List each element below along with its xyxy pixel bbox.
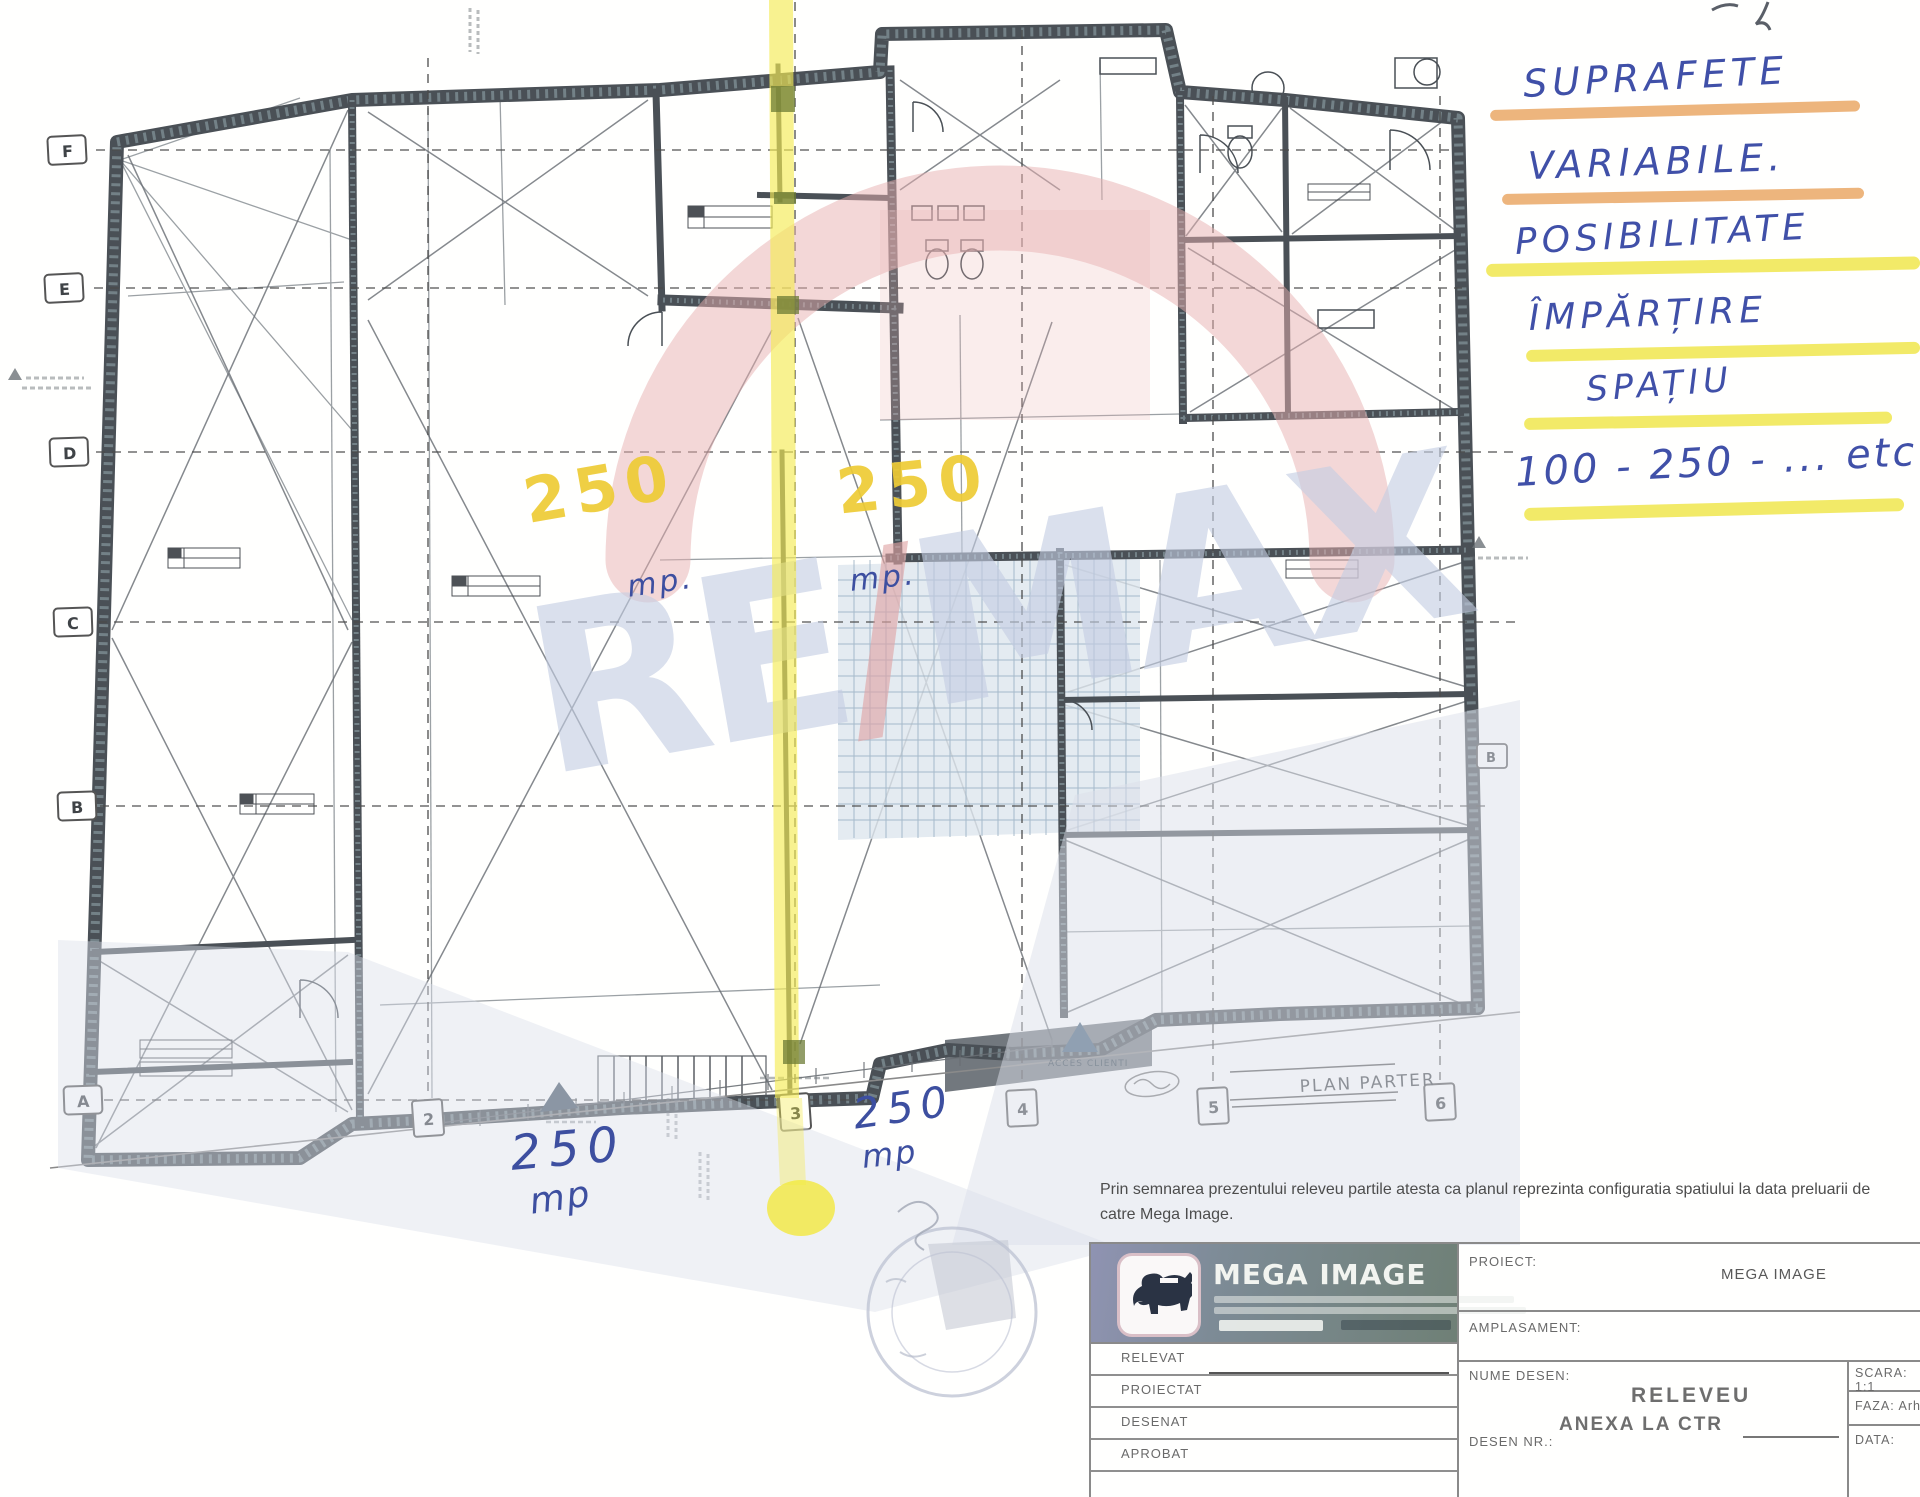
desen-nr-label: DESEN NR.:: [1469, 1434, 1553, 1449]
logo-address-line-1: [1214, 1296, 1514, 1303]
row-desenat: DESENAT: [1121, 1414, 1188, 1429]
amplasament-label: AMPLASAMENT:: [1469, 1320, 1581, 1335]
note-impartire: ÎMPĂRȚIRE: [1528, 290, 1768, 339]
row-proiectat: PROIECTAT: [1121, 1382, 1202, 1397]
grid-bubble-D: D: [50, 437, 89, 466]
area-250-blue-1: 250: [508, 1116, 628, 1182]
drawing-name-2: ANEXA LA CTR: [1559, 1414, 1723, 1436]
grid-bubble-B: B: [58, 791, 97, 820]
disclaimer-line2: catre Mega Image.: [1100, 1203, 1920, 1228]
logo-white-strip: [1219, 1320, 1323, 1331]
note-variabile: VARIABILE.: [1527, 135, 1786, 188]
proiect-value: MEGA IMAGE: [1721, 1266, 1827, 1283]
faza-label: FAZA: Arh.: [1855, 1399, 1920, 1413]
proiect-label: PROIECT:: [1469, 1254, 1537, 1269]
delhaize-lion-icon: [1117, 1253, 1201, 1337]
svg-text:F: F: [62, 142, 74, 162]
disclaimer-line1: Prin semnarea prezentului releveu partil…: [1100, 1178, 1920, 1203]
grid-bubble-E: E: [44, 273, 83, 303]
nume-desen-label: NUME DESEN:: [1469, 1368, 1570, 1383]
data-label: DATA:: [1855, 1433, 1895, 1447]
area-250-mp-1: mp: [527, 1173, 594, 1222]
scara-label: SCARA: 1:1: [1855, 1366, 1920, 1394]
svg-text:D: D: [63, 444, 77, 463]
disclaimer-paragraph: Prin semnarea prezentului releveu partil…: [1100, 1178, 1920, 1228]
logo-wordmark: MEGA IMAGE: [1213, 1258, 1426, 1291]
row-relevat: RELEVAT: [1121, 1350, 1185, 1365]
area-250-mp-2: mp: [860, 1132, 919, 1176]
drawing-name-1: RELEVEU: [1631, 1384, 1751, 1408]
grid-bubble-F: F: [47, 135, 86, 165]
svg-text:E: E: [59, 280, 71, 300]
logo-phone-strip: [1341, 1320, 1451, 1330]
svg-text:C: C: [67, 614, 79, 633]
title-block: MEGA IMAGE RELEVAT PROIECTAT DESENAT APR…: [1089, 1242, 1920, 1497]
row-aprobat: APROBAT: [1121, 1446, 1189, 1461]
area-mp-2: mp.: [848, 557, 918, 599]
grid-bubble-C: C: [54, 607, 93, 636]
mega-image-logo-band: MEGA IMAGE: [1091, 1244, 1459, 1344]
svg-text:B: B: [71, 798, 84, 817]
corner-squiggle: [1712, 2, 1770, 30]
scanned-floor-plan-page: F E D C B A B 2 3 4 5 6 ACCES CLIENTI PL…: [0, 0, 1920, 1497]
